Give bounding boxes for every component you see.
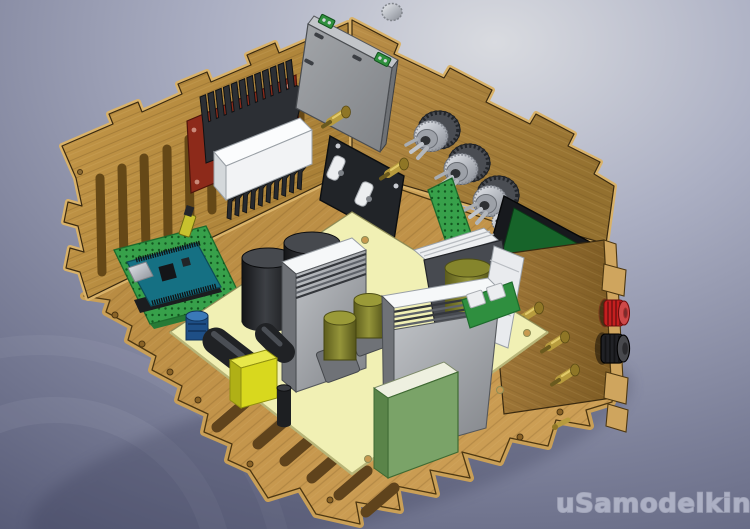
output-box-side (374, 388, 388, 478)
binding-post-black (595, 333, 629, 364)
clip-hole (338, 170, 344, 176)
cad-render-image: uSamodelkina.ru (0, 0, 750, 529)
clip-hole (366, 196, 372, 202)
small-black-cylinder (277, 385, 291, 427)
plate-screw (336, 144, 341, 149)
watermark: uSamodelkina.ru (556, 489, 750, 519)
panel-screw-hole (78, 170, 83, 175)
plate-screw (394, 184, 399, 189)
transformer-winding-top (445, 259, 491, 277)
fuse-holder-cap (382, 4, 402, 21)
film-capacitor-yellow (230, 350, 277, 408)
binding-post-red (599, 299, 630, 327)
cad-render-viewport: uSamodelkina.ru (0, 0, 750, 529)
